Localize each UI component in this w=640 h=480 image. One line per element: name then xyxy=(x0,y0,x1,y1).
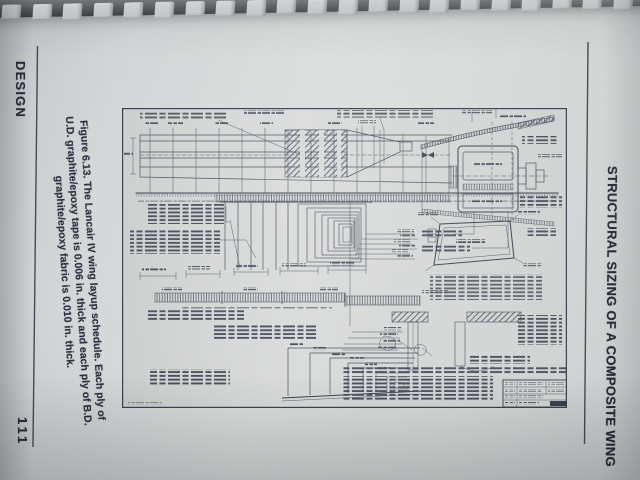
page-number: 111 xyxy=(15,417,30,446)
figure-caption: Figure 6.13. The Lancair IV wing layup s… xyxy=(41,102,109,440)
equations-block xyxy=(430,274,542,300)
footer-rule xyxy=(33,46,38,447)
page-header-title: STRUCTURAL SIZING OF A COMPOSITE WING xyxy=(598,166,620,442)
book-photo: DESIGN 111 STRUCTURAL SIZING OF A COMPOS… xyxy=(0,0,640,480)
header-rule xyxy=(585,42,589,444)
page-content: DESIGN 111 STRUCTURAL SIZING OF A COMPOS… xyxy=(0,0,640,480)
title-block xyxy=(503,380,567,407)
wing-layup-drawing xyxy=(122,108,567,408)
section-label: DESIGN xyxy=(13,61,28,118)
